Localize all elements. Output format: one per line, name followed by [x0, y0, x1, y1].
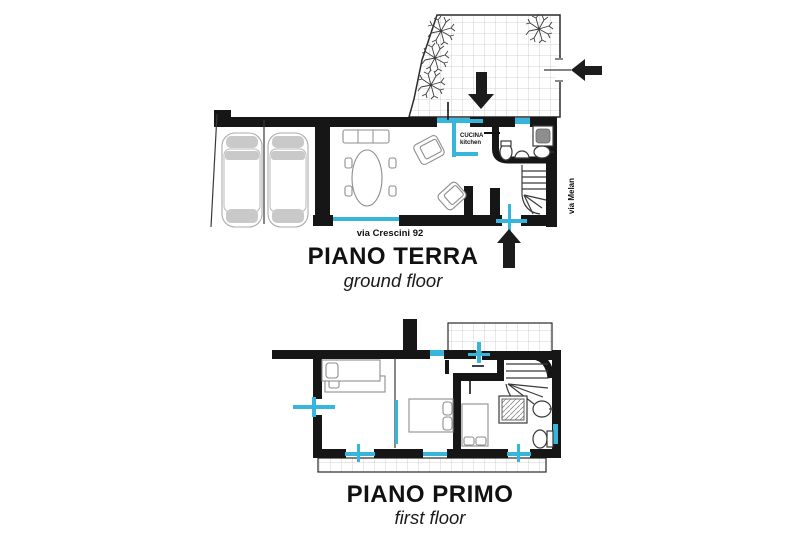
entrance-arrow-front-icon	[497, 229, 521, 268]
middle-bedroom	[409, 399, 453, 432]
kitchen-label-it: CUCINA	[460, 133, 484, 139]
floor-plan-drawing: CUCINA kitchen	[0, 0, 800, 533]
chair	[345, 186, 352, 196]
small-bedroom	[462, 404, 488, 446]
entrance-arrow-side-icon	[571, 59, 602, 81]
sink	[533, 401, 551, 417]
armchair	[412, 134, 445, 166]
kitchen-counter	[452, 119, 483, 123]
wall-segment	[417, 350, 430, 359]
wall-segment	[313, 449, 346, 458]
pillow	[476, 437, 486, 445]
window-marker	[517, 444, 520, 462]
window-marker	[312, 397, 316, 417]
street-label-side: via Melan	[567, 178, 576, 214]
shower-tray	[502, 399, 524, 420]
ground-floor-bathroom	[500, 126, 554, 160]
left-bedroom	[322, 360, 385, 392]
street-label-front: via Crescini 92	[357, 228, 424, 239]
first-floor-plan: PIANO PRIMO first floor	[272, 319, 561, 528]
toilet-tank	[501, 141, 511, 146]
dining-table	[345, 150, 396, 206]
toilet	[533, 430, 547, 448]
entry-door-marker	[496, 219, 527, 223]
living-room	[343, 130, 468, 211]
upper-terrace	[448, 323, 552, 352]
window-marker	[395, 400, 398, 444]
ground-floor-subtitle: ground floor	[344, 270, 444, 291]
wall-segment	[315, 117, 330, 226]
wall-segment	[530, 449, 560, 458]
garage	[211, 114, 308, 227]
wall-segment	[447, 449, 508, 458]
first-floor-title: PIANO PRIMO	[347, 481, 514, 508]
window-marker	[468, 353, 490, 356]
wall-segment	[464, 186, 473, 216]
chair	[345, 158, 352, 168]
armchair	[436, 181, 467, 212]
shower-tray	[536, 129, 550, 143]
sink	[534, 146, 550, 158]
toilet-tank	[547, 431, 553, 447]
sofa	[343, 130, 389, 143]
balcony	[318, 458, 546, 472]
wall-segment	[490, 188, 500, 216]
pillow	[443, 402, 452, 415]
wall-segment	[399, 215, 502, 226]
kitchen-label-en: kitchen	[460, 140, 481, 146]
ground-floor-title: PIANO TERRA	[308, 243, 479, 270]
pillow	[326, 363, 338, 378]
bidet	[515, 151, 529, 158]
floor-plan-sheet: CUCINA kitchen	[0, 0, 800, 533]
wall-segment	[453, 381, 461, 449]
wall-segment	[497, 352, 504, 381]
chair	[389, 186, 396, 196]
car-top-view	[268, 133, 308, 227]
wall-stub	[445, 360, 449, 374]
pillow	[443, 417, 452, 430]
window-marker	[515, 118, 530, 124]
window-marker	[357, 444, 360, 462]
wall-segment	[453, 373, 504, 381]
ground-floor-walls	[214, 110, 557, 227]
ground-floor-stairs	[522, 165, 546, 214]
kitchen-counter	[452, 152, 478, 156]
wall-segment	[374, 449, 423, 458]
pillow	[464, 437, 474, 445]
wall-segment	[322, 350, 403, 359]
chimney-block	[403, 319, 417, 359]
window-marker	[553, 424, 558, 444]
window-marker	[430, 350, 444, 356]
window-marker	[477, 342, 481, 363]
window-marker	[333, 217, 399, 221]
car-top-view	[222, 133, 262, 227]
garage-boundary-line	[211, 114, 217, 227]
chair	[389, 158, 396, 168]
window-marker	[423, 452, 447, 456]
first-floor-subtitle: first floor	[395, 507, 467, 528]
ground-floor-plan: CUCINA kitchen	[211, 14, 602, 291]
first-floor-bathroom	[499, 396, 553, 448]
kitchen-counter	[452, 119, 456, 157]
